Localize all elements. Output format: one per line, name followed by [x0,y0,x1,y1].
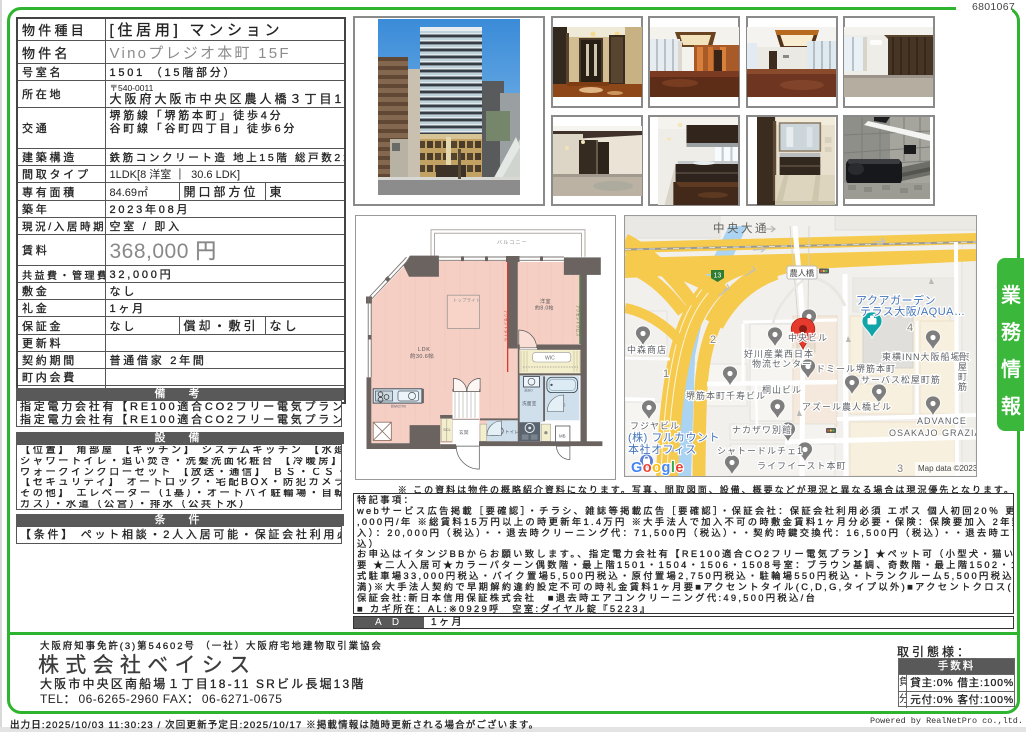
svg-text:MB: MB [559,434,566,439]
svg-text:本社オフィス: 本社オフィス [628,442,697,456]
svg-text:WIC: WIC [545,356,555,362]
svg-text:骨屋町筋: 骨屋町筋 [957,352,967,392]
svg-text:Map data ©2023: Map data ©2023 [918,464,976,473]
svg-text:約8.0帖: 約8.0帖 [535,305,554,312]
svg-text:2: 2 [710,334,716,346]
svg-text:中央ビル: 中央ビル [788,332,828,343]
svg-text:バルコニー: バルコニー [497,240,528,246]
svg-text:サーバス松屋町筋: サーバス松屋町筋 [861,374,941,385]
svg-text:中森商店: 中森商店 [627,344,667,355]
svg-text:シャトードルチェ1: シャトードルチェ1 [717,446,803,456]
svg-text:ライフイースト本町: ライフイースト本町 [757,460,847,471]
svg-text:玄関: 玄関 [459,429,469,436]
svg-text:約30.6帖: 約30.6帖 [410,352,434,360]
svg-text:OSAKAJO GRAZIA: OSAKAJO GRAZIA [889,428,976,438]
svg-text:農人橋: 農人橋 [790,268,815,278]
svg-text:13: 13 [714,273,722,280]
svg-text:ナカザワ別館: ナカザワ別館 [732,424,792,435]
svg-text:好川産業西日本: 好川産業西日本 [744,348,814,359]
svg-text:桐山ビル: 桐山ビル [762,384,802,395]
svg-text:1: 1 [663,368,669,380]
svg-text:テラス大阪/AQUA…: テラス大阪/AQUA… [860,304,966,318]
svg-text:アズール農人橋ビル: アズール農人橋ビル [802,401,892,412]
svg-text:堺筋本町千寿ビル: 堺筋本町千寿ビル [686,390,766,401]
svg-text:3: 3 [897,463,903,475]
svg-text:アクアガーデン: アクアガーデン [856,293,936,307]
svg-text:物流センター: 物流センター [752,358,812,369]
svg-text:ADVANCE: ADVANCE [917,416,967,426]
svg-text:洗面室: 洗面室 [522,400,537,407]
svg-text:(株) フルカウント: (株) フルカウント [628,430,720,444]
svg-text:アクセントクロス: アクセントクロス [576,305,581,337]
svg-text:中央大通: 中央大通 [713,221,769,235]
svg-text:4: 4 [907,322,913,334]
svg-text:Google: Google [631,460,684,476]
svg-text:洋室: 洋室 [540,298,551,305]
svg-text:LDK: LDK [418,347,431,353]
svg-text:アクセントタイル: アクセントタイル [504,310,509,342]
svg-text:フジヤビル: フジヤビル [630,421,680,431]
svg-text:トイレ: トイレ [505,430,519,435]
svg-text:ドミール堺筋本町: ドミール堺筋本町 [816,363,896,374]
svg-text:SCL: SCL [443,428,450,432]
svg-text:約W2700: 約W2700 [391,404,406,409]
svg-text:洗BO: 洗BO [524,388,533,393]
